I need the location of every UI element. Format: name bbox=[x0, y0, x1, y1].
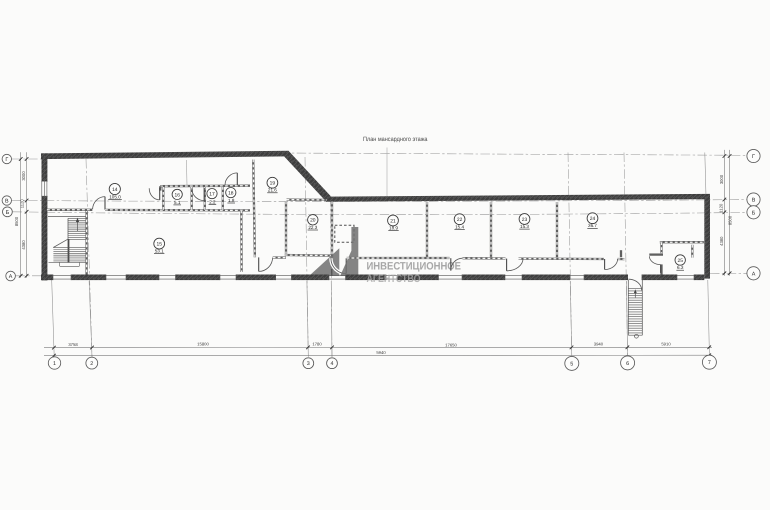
svg-text:А: А bbox=[752, 271, 756, 277]
svg-text:3000: 3000 bbox=[719, 174, 724, 184]
svg-text:8500: 8500 bbox=[727, 215, 732, 225]
svg-text:4380: 4380 bbox=[719, 236, 724, 246]
svg-text:4380: 4380 bbox=[21, 240, 26, 250]
svg-text:3: 3 bbox=[307, 361, 310, 367]
svg-text:15.3: 15.3 bbox=[520, 224, 529, 229]
svg-text:15800: 15800 bbox=[197, 342, 209, 347]
svg-text:5910: 5910 bbox=[661, 342, 671, 347]
svg-text:22: 22 bbox=[457, 217, 463, 223]
svg-text:3940: 3940 bbox=[594, 342, 604, 347]
svg-text:18.9: 18.9 bbox=[389, 226, 398, 231]
svg-text:1120: 1120 bbox=[20, 199, 25, 209]
svg-text:19: 19 bbox=[270, 181, 276, 187]
svg-text:6.3: 6.3 bbox=[677, 265, 684, 270]
svg-text:3000: 3000 bbox=[21, 171, 26, 181]
svg-text:25: 25 bbox=[677, 258, 683, 264]
svg-text:21: 21 bbox=[390, 218, 396, 224]
svg-text:План мансардного этажа: План мансардного этажа bbox=[363, 136, 428, 143]
svg-text:105.0: 105.0 bbox=[109, 195, 121, 200]
svg-text:1120: 1120 bbox=[718, 203, 723, 213]
svg-text:5.1: 5.1 bbox=[174, 200, 181, 205]
svg-text:8500: 8500 bbox=[14, 216, 19, 226]
svg-text:53.1: 53.1 bbox=[155, 249, 164, 254]
svg-text:А: А bbox=[9, 274, 13, 280]
svg-text:14: 14 bbox=[112, 187, 118, 193]
svg-text:Б: Б bbox=[6, 210, 10, 216]
svg-text:18: 18 bbox=[228, 191, 234, 197]
svg-text:20: 20 bbox=[310, 218, 316, 224]
svg-text:1780: 1780 bbox=[312, 342, 322, 347]
svg-text:ИНВЕСТИЦИОННОЕ: ИНВЕСТИЦИОННОЕ bbox=[367, 261, 462, 273]
svg-text:5: 5 bbox=[570, 361, 573, 367]
svg-text:16: 16 bbox=[174, 192, 180, 198]
svg-text:17: 17 bbox=[209, 192, 215, 198]
svg-text:4: 4 bbox=[331, 361, 334, 367]
svg-text:Б: Б bbox=[752, 210, 756, 216]
svg-text:15.4: 15.4 bbox=[455, 224, 464, 229]
svg-text:АГЕНТСТВО: АГЕНТСТВО bbox=[367, 273, 421, 285]
svg-text:24: 24 bbox=[590, 216, 596, 222]
svg-text:2: 2 bbox=[90, 361, 93, 367]
svg-text:Г: Г bbox=[752, 154, 755, 160]
svg-text:В: В bbox=[5, 199, 9, 205]
svg-text:7: 7 bbox=[708, 360, 711, 366]
svg-text:Г: Г bbox=[5, 157, 8, 163]
svg-text:6: 6 bbox=[626, 361, 629, 367]
svg-text:36.7: 36.7 bbox=[588, 223, 597, 228]
svg-text:В: В bbox=[752, 198, 756, 204]
svg-text:5940: 5940 bbox=[376, 350, 386, 355]
svg-text:23: 23 bbox=[522, 217, 528, 223]
svg-text:3758: 3758 bbox=[68, 342, 78, 347]
svg-text:15: 15 bbox=[156, 242, 162, 248]
svg-text:21.6: 21.6 bbox=[268, 188, 277, 193]
svg-text:1: 1 bbox=[53, 361, 56, 367]
svg-text:22.3: 22.3 bbox=[308, 225, 317, 230]
svg-text:2.2: 2.2 bbox=[209, 199, 216, 204]
svg-text:17650: 17650 bbox=[445, 343, 457, 348]
svg-text:1.8: 1.8 bbox=[228, 198, 235, 203]
